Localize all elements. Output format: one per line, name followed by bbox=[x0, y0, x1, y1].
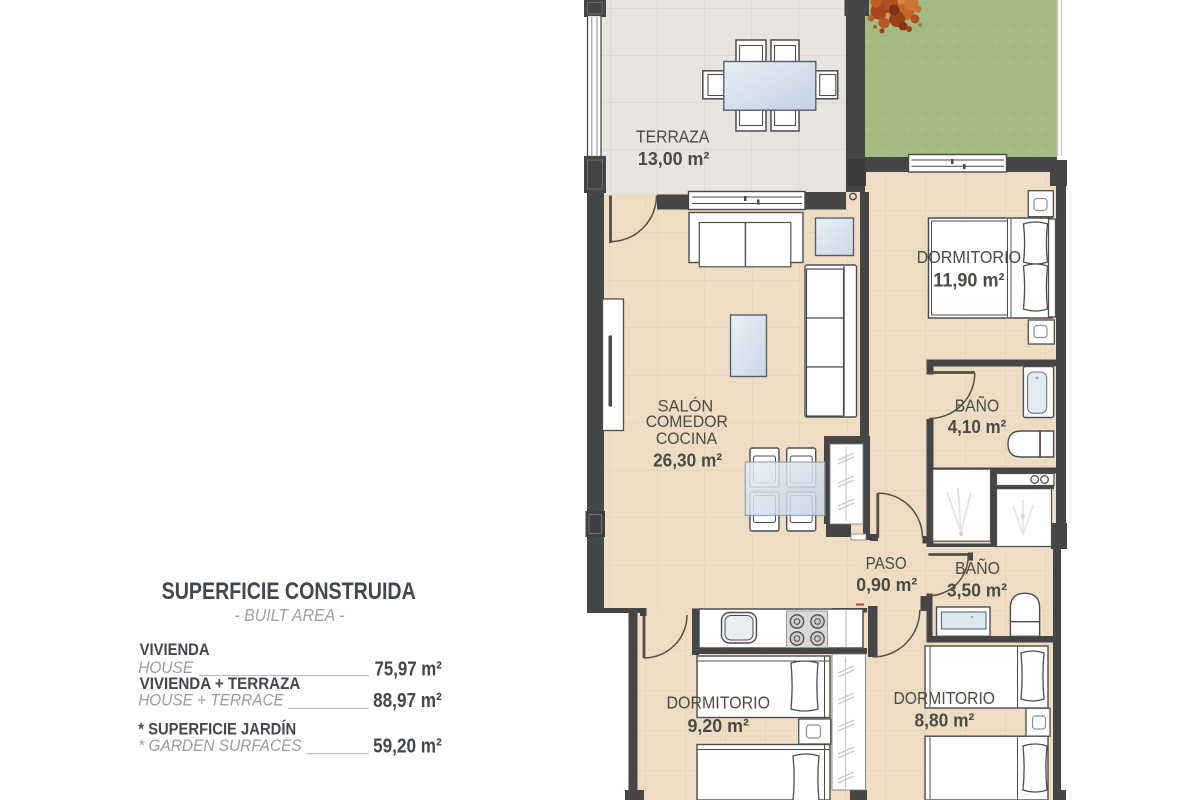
svg-text:COCINA: COCINA bbox=[656, 430, 717, 448]
svg-text:3,50 m²: 3,50 m² bbox=[947, 580, 1007, 601]
svg-text:DORMITORIO: DORMITORIO bbox=[894, 688, 996, 708]
svg-text:9,20 m²: 9,20 m² bbox=[688, 715, 750, 736]
svg-text:26,30 m²: 26,30 m² bbox=[653, 450, 722, 471]
svg-text:75,97 m²: 75,97 m² bbox=[375, 658, 442, 681]
svg-text:* GARDEN SURFACES: * GARDEN SURFACES bbox=[138, 736, 302, 755]
svg-text:BAÑO: BAÑO bbox=[955, 394, 1000, 415]
svg-text:11,90 m²: 11,90 m² bbox=[933, 271, 1004, 292]
svg-text:59,20 m²: 59,20 m² bbox=[373, 734, 442, 757]
svg-text:4,10 m²: 4,10 m² bbox=[948, 416, 1007, 437]
svg-text:SUPERFICIE CONSTRUIDA: SUPERFICIE CONSTRUIDA bbox=[162, 578, 416, 605]
svg-text:DORMITORIO: DORMITORIO bbox=[917, 247, 1022, 267]
svg-text:DORMITORIO: DORMITORIO bbox=[667, 693, 771, 713]
svg-text:- BUILT AREA -: - BUILT AREA - bbox=[234, 605, 344, 625]
svg-text:PASO: PASO bbox=[866, 553, 907, 573]
svg-text:VIVIENDA: VIVIENDA bbox=[140, 641, 210, 659]
svg-text:8,80 m²: 8,80 m² bbox=[915, 710, 975, 731]
svg-text:13,00 m²: 13,00 m² bbox=[638, 148, 710, 169]
svg-text:BAÑO: BAÑO bbox=[955, 557, 1000, 578]
svg-text:TERRAZA: TERRAZA bbox=[636, 127, 710, 147]
svg-text:0,90 m²: 0,90 m² bbox=[856, 574, 917, 595]
svg-text:COMEDOR: COMEDOR bbox=[646, 413, 728, 431]
svg-text:88,97 m²: 88,97 m² bbox=[373, 689, 442, 712]
svg-text:HOUSE + TERRACE: HOUSE + TERRACE bbox=[138, 691, 284, 710]
